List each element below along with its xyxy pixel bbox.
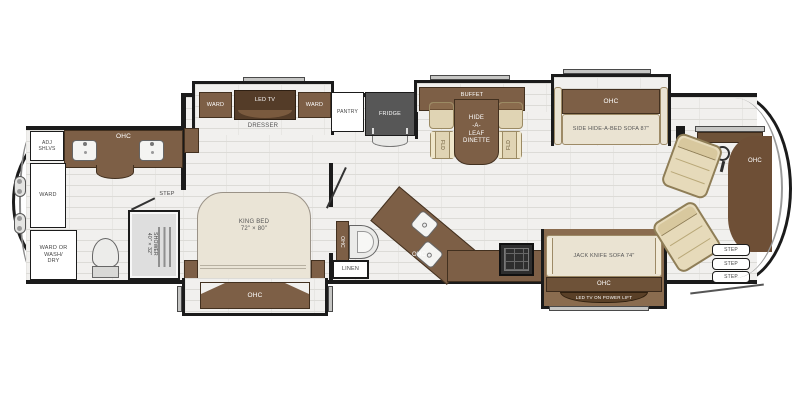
jack-ohc-label: OHC: [597, 281, 611, 288]
refrigerator: FRIDGE: [365, 92, 415, 136]
bed-ohc-label: OHC: [247, 292, 262, 300]
seat-stitch: [670, 225, 703, 246]
pantry-label: PANTRY: [337, 109, 358, 115]
tv-lift-cabinet: LED TV ON POWER LIFT: [560, 292, 648, 303]
fridge-counter-curve: [372, 136, 408, 147]
led-tv-label: LED TV: [235, 97, 295, 104]
ladder-hinge: [14, 213, 26, 234]
adjustable-shelves-cabinet: ADJ SHLVS: [30, 131, 64, 161]
linen-label: LINEN: [342, 266, 359, 273]
fridge-handle: [372, 128, 374, 134]
faucet: [150, 142, 154, 146]
bed-slideout: OHC: [182, 278, 328, 316]
sofa-armrest: [660, 87, 668, 145]
jack-knife-sofa-label: JACK KNIFE SOFA 74": [573, 253, 634, 260]
drain: [151, 151, 154, 154]
chair-armrest: [431, 132, 436, 158]
fld-label: FLD: [506, 140, 512, 150]
fridge-handle: [406, 128, 408, 134]
dinette-folding-chair: FLD: [430, 131, 455, 159]
jack-knife-sofa: JACK KNIFE SOFA 74": [546, 235, 662, 277]
side-hide-a-bed-sofa: SIDE HIDE-A-BED SOFA 87": [562, 114, 660, 145]
faucet: [83, 142, 87, 146]
drain: [84, 151, 87, 154]
shower-seat-slats: [158, 227, 174, 267]
bed-ohc-cabinet: OHC: [200, 282, 310, 309]
sofa-slideout: OHC SIDE HIDE-A-BED SOFA 87": [551, 74, 671, 146]
seat-stitch: [671, 171, 705, 184]
bath-sink: [139, 140, 164, 161]
seat-stitch: [678, 238, 711, 259]
wardrobe-left: WARD: [199, 92, 232, 118]
ward-right-label: WARD: [306, 102, 323, 109]
drain: [421, 222, 428, 229]
hinge-pin: [17, 179, 22, 184]
fld-label: FLD: [439, 140, 445, 150]
hinge-pin: [17, 189, 22, 194]
cooktop: [499, 243, 534, 276]
kitchen-ohc-label: OHC: [405, 252, 433, 259]
dresser-label: DRESSER: [195, 123, 331, 130]
shower: SHOWER 40" × 32": [128, 210, 180, 280]
seat-stitch: [675, 158, 709, 171]
linen-cabinet: LINEN: [332, 260, 369, 279]
chair-back: [499, 103, 522, 110]
rear-ward-label: WARD: [39, 192, 56, 199]
washer-dryer-cabinet: WARD OR WASH/ DRY: [30, 230, 77, 280]
cooktop-grate: [504, 248, 529, 271]
bedroom-corner-cabinet: [184, 128, 199, 153]
dinette-chair: [498, 102, 523, 129]
king-bed-label: KING BED 72" × 80": [198, 219, 310, 233]
dinette-table-label: HIDE -A- LEAF DINETTE: [455, 115, 498, 146]
bedroom-tv-cabinet: LED TV: [234, 90, 296, 120]
rear-wardrobe: WARD: [30, 163, 66, 228]
jackknife-slideout: JACK KNIFE SOFA 74" OHC LED TV ON POWER …: [541, 229, 667, 309]
adj-shlvs-label: ADJ SHLVS: [38, 140, 55, 152]
ward-left-label: WARD: [207, 102, 224, 109]
dinette-table: HIDE -A- LEAF DINETTE: [454, 99, 499, 165]
toilet-seat: [357, 231, 374, 253]
rv-floorplan: OHC ADJ SHLVS WARD WARD OR WASH/ DRY SHO…: [0, 0, 800, 400]
wardrobe-right: WARD: [298, 92, 331, 118]
sofa-armrest: [547, 238, 553, 274]
entry-door-swing-line: [690, 283, 764, 294]
ladder-hinge: [14, 176, 26, 197]
king-bed: KING BED 72" × 80": [197, 192, 311, 284]
chair-armrest: [516, 132, 521, 158]
sofa-ohc-label: OHC: [603, 98, 618, 106]
dinette-chair: [429, 102, 454, 129]
ward-wash-dry-label: WARD OR WASH/ DRY: [40, 245, 68, 265]
vanity-front-curve: [96, 165, 134, 179]
tv-lift-label: LED TV ON POWER LIFT: [576, 295, 632, 300]
chair-back: [430, 103, 453, 110]
rear-toilet-tank: [92, 266, 119, 278]
dinette-folding-chair: FLD: [497, 131, 522, 159]
sofa-ohc-cabinet: OHC: [562, 89, 660, 114]
jack-ohc-cabinet: OHC: [546, 277, 662, 292]
sofa-armrest: [655, 238, 661, 274]
half-bath-ohc-label: OHC: [339, 234, 345, 250]
rear-toilet-bowl: [92, 238, 119, 268]
shower-label: SHOWER 40" × 32": [146, 214, 158, 274]
tv-curve: [238, 110, 292, 118]
bath-step-label: STEP: [150, 191, 184, 198]
pantry-cabinet: PANTRY: [331, 92, 364, 132]
side-sofa-label: SIDE HIDE-A-BED SOFA 87": [573, 126, 649, 133]
half-bath-ohc-cabinet: OHC: [336, 221, 349, 263]
hinge-pin: [17, 216, 22, 221]
sofa-armrest: [554, 87, 562, 145]
slide-rail: [549, 306, 649, 311]
slide-rail: [328, 286, 333, 312]
bedroom-slideout: WARD LED TV WARD DRESSER: [192, 81, 334, 135]
bed-foot-taper: [201, 283, 225, 294]
bath-sink: [72, 140, 97, 161]
bed-foot-taper: [285, 283, 309, 294]
fridge-label: FRIDGE: [379, 111, 401, 118]
bed-sheet-fold: [200, 265, 306, 269]
hinge-pin: [17, 226, 22, 231]
